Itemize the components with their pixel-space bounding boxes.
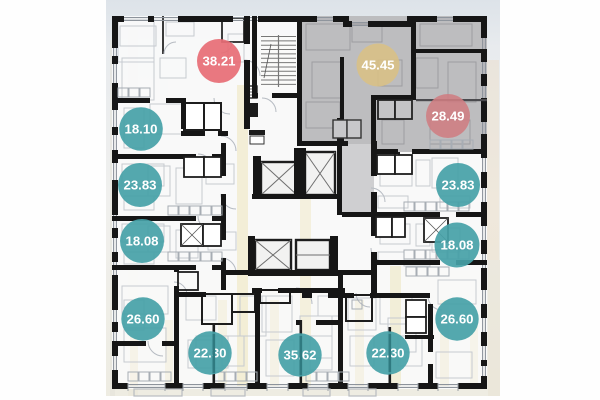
svg-text:26.60: 26.60: [440, 312, 473, 327]
svg-text:22.30: 22.30: [371, 346, 404, 361]
svg-text:18.10: 18.10: [124, 122, 157, 137]
svg-text:38.21: 38.21: [202, 54, 235, 69]
svg-text:22.30: 22.30: [193, 346, 226, 361]
svg-text:23.83: 23.83: [441, 178, 474, 193]
svg-text:18.08: 18.08: [125, 234, 158, 249]
svg-text:23.83: 23.83: [123, 178, 156, 193]
svg-text:28.49: 28.49: [431, 109, 464, 124]
svg-text:45.45: 45.45: [361, 58, 394, 73]
svg-text:18.08: 18.08: [440, 238, 473, 253]
svg-text:26.60: 26.60: [126, 312, 159, 327]
